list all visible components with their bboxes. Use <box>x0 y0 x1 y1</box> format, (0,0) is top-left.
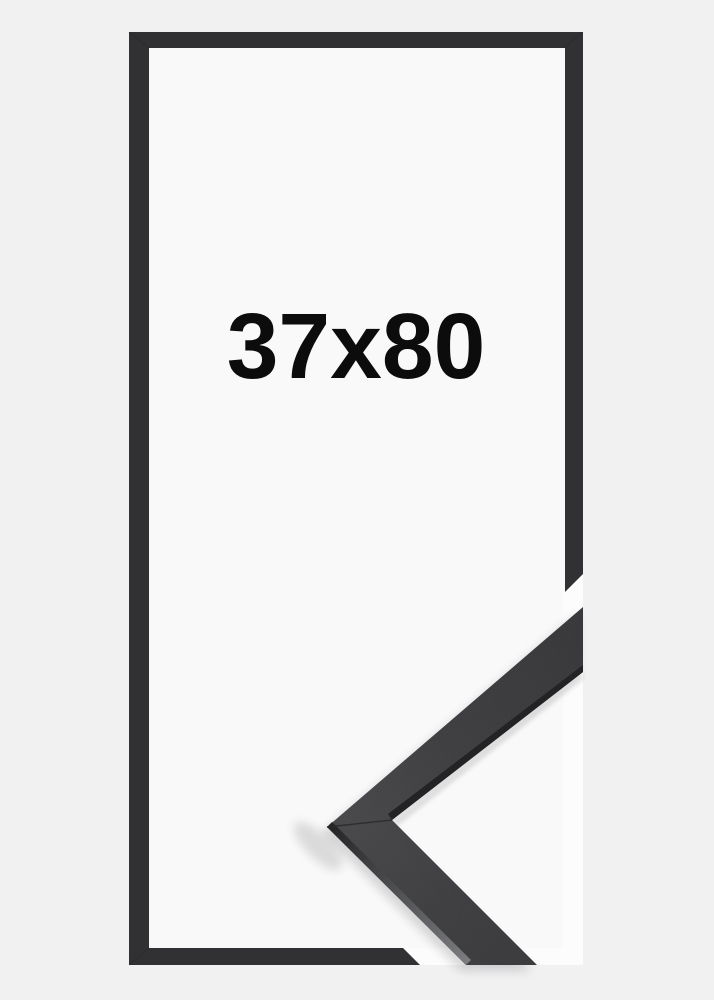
size-label: 37x80 <box>129 296 583 396</box>
product-image: 37x80 <box>0 0 714 1000</box>
frame-illustration <box>0 0 714 1000</box>
